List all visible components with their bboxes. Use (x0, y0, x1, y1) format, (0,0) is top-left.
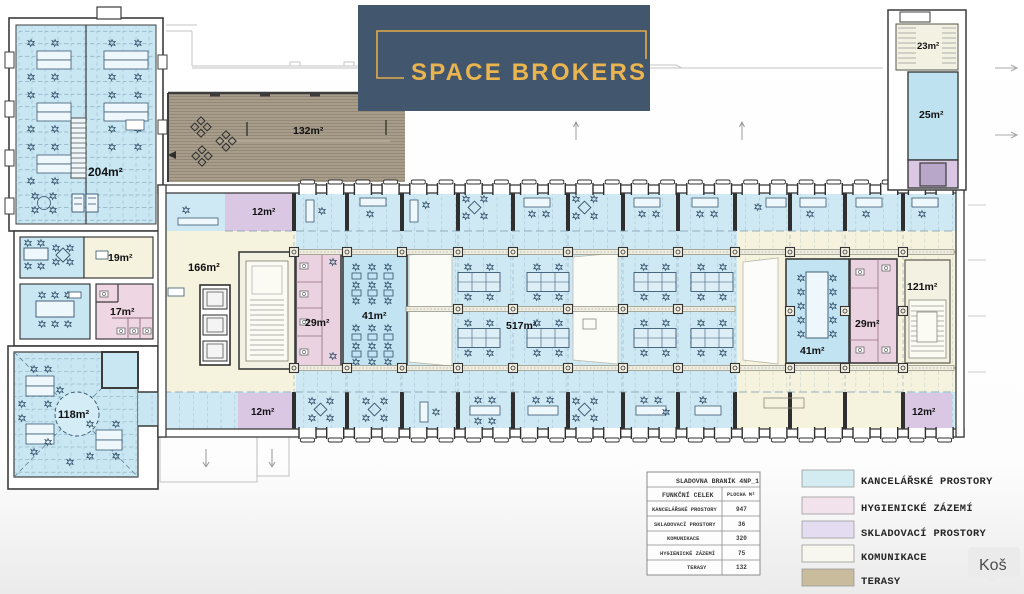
svg-text:947: 947 (736, 506, 747, 513)
svg-text:75: 75 (738, 550, 746, 557)
svg-text:HYGIENICKÉ ZÁZEMÍ: HYGIENICKÉ ZÁZEMÍ (660, 550, 715, 557)
svg-text:29m²: 29m² (305, 317, 330, 329)
svg-text:166m²: 166m² (188, 262, 220, 274)
svg-text:121m²: 121m² (907, 281, 938, 293)
svg-text:SKLADOVACÍ PROSTORY: SKLADOVACÍ PROSTORY (861, 526, 987, 540)
svg-text:KANCELÁŘSKÉ PROSTORY: KANCELÁŘSKÉ PROSTORY (861, 474, 993, 488)
svg-text:KANCELÁŘSKÉ PROSTORY: KANCELÁŘSKÉ PROSTORY (652, 506, 717, 513)
svg-text:SLADOVNA BRANÍK 4NP_1: SLADOVNA BRANÍK 4NP_1 (676, 477, 759, 485)
svg-text:132m²: 132m² (293, 125, 324, 137)
svg-text:118m²: 118m² (58, 409, 90, 421)
svg-text:TERASY: TERASY (861, 576, 901, 588)
svg-text:41m²: 41m² (362, 310, 387, 322)
svg-text:12m²: 12m² (912, 407, 936, 418)
svg-text:36: 36 (738, 521, 746, 528)
svg-text:FUNKČNÍ CELEK: FUNKČNÍ CELEK (662, 490, 713, 499)
svg-text:517m²: 517m² (506, 320, 537, 332)
svg-text:29m²: 29m² (855, 318, 880, 330)
svg-text:320: 320 (736, 535, 747, 542)
svg-text:25m²: 25m² (919, 109, 944, 121)
svg-text:KOMUNIKACE: KOMUNIKACE (667, 536, 700, 542)
svg-text:KOMUNIKACE: KOMUNIKACE (861, 552, 927, 564)
svg-text:19m²: 19m² (108, 252, 133, 264)
svg-text:Koš: Koš (979, 557, 1007, 574)
svg-text:12m²: 12m² (252, 207, 276, 218)
svg-text:132: 132 (736, 564, 747, 571)
svg-text:PLOCHA M²: PLOCHA M² (727, 492, 755, 498)
svg-text:SPACE BROKERS: SPACE BROKERS (411, 59, 647, 86)
svg-text:HYGIENICKÉ ZÁZEMÍ: HYGIENICKÉ ZÁZEMÍ (861, 501, 973, 515)
svg-text:17m²: 17m² (110, 306, 135, 318)
svg-text:41m²: 41m² (800, 345, 825, 357)
svg-text:23m²: 23m² (917, 41, 939, 52)
svg-text:12m²: 12m² (251, 407, 275, 418)
svg-text:TERASY: TERASY (687, 565, 707, 571)
svg-text:SKLADOVACÍ PROSTORY: SKLADOVACÍ PROSTORY (654, 521, 716, 528)
svg-text:204m²: 204m² (88, 165, 123, 179)
